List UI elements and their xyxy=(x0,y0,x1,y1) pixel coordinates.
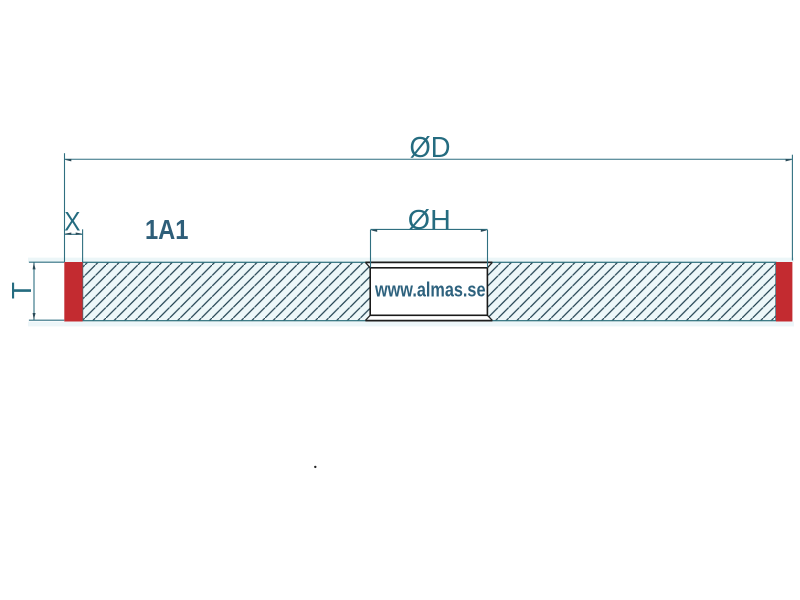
svg-text:www.almas.se: www.almas.se xyxy=(374,278,485,301)
svg-text:1A1: 1A1 xyxy=(145,214,189,245)
svg-text:ØD: ØD xyxy=(410,132,451,164)
svg-text:X: X xyxy=(64,207,80,236)
svg-text:T: T xyxy=(6,282,37,299)
svg-text:ØH: ØH xyxy=(408,204,451,235)
